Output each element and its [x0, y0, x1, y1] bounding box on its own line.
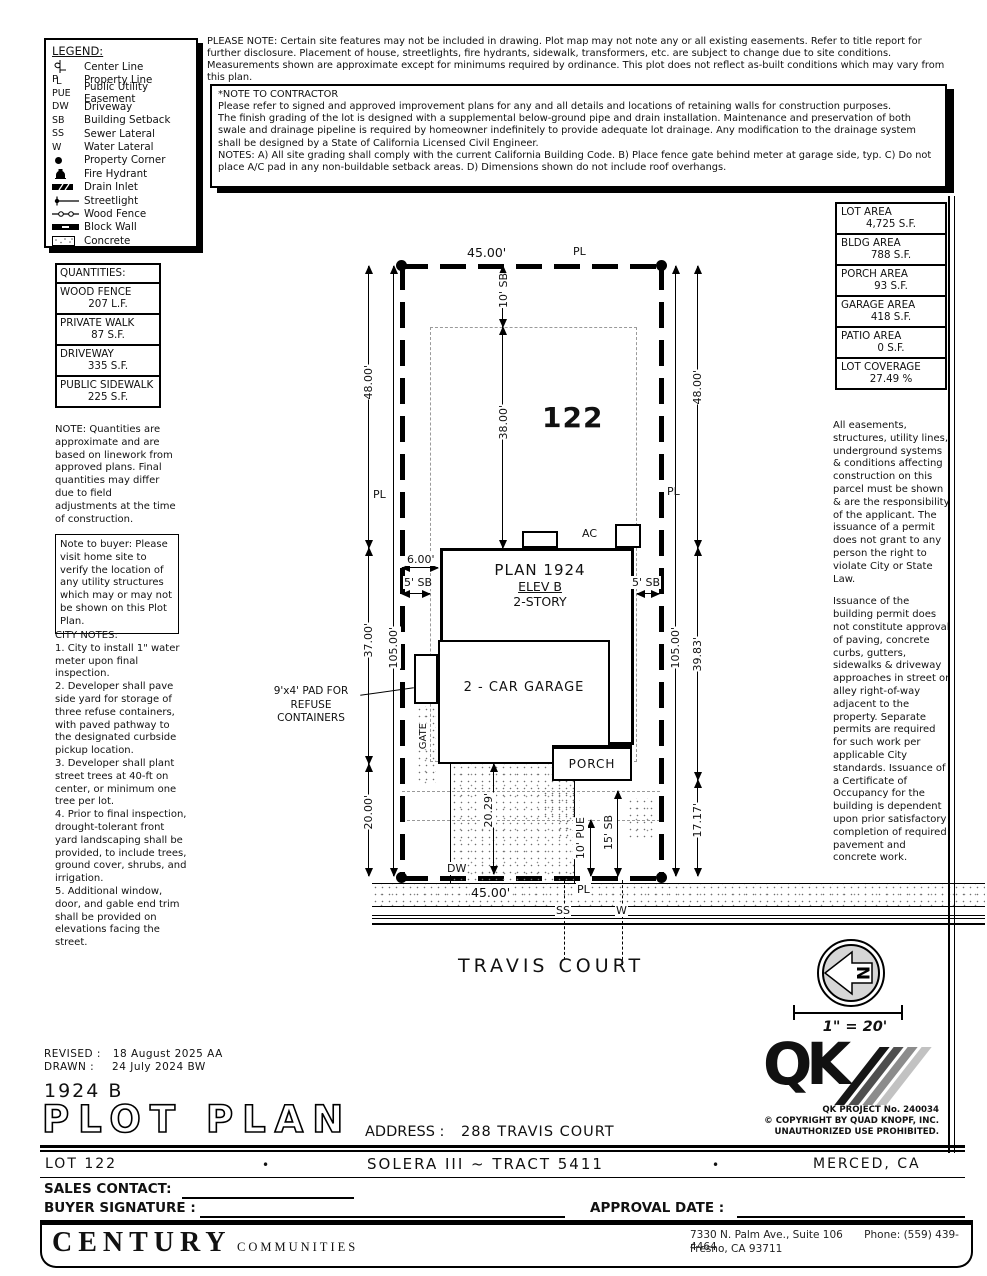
- wood-fence-icon: [52, 210, 84, 218]
- pl-label-top: PL: [572, 245, 587, 258]
- footer-lot: LOT 122: [45, 1156, 117, 1172]
- scale-bar-tick: [901, 1005, 903, 1020]
- street-edge-line: [372, 923, 985, 925]
- quantities-row: PUBLIC SIDEWALK 225 S.F.: [57, 375, 159, 406]
- address-label: ADDRESS :: [365, 1124, 444, 1140]
- legend-label: Wood Fence: [84, 208, 146, 220]
- block-wall-icon: [52, 224, 84, 230]
- legend-row: Center Line: [52, 60, 190, 73]
- concrete-icon: [52, 236, 84, 246]
- dim-line-rear-sb: [617, 791, 618, 876]
- scale-bar-tick: [793, 1005, 795, 1020]
- legend-label: Center Line: [84, 61, 143, 73]
- quantities-note: NOTE: Quantities are approximate and are…: [55, 424, 177, 526]
- ac-pad: [615, 524, 641, 548]
- legend-row: SS Sewer Lateral: [52, 127, 190, 140]
- quantity-value: 87 S.F.: [60, 329, 156, 341]
- property-line-left: [400, 264, 405, 881]
- dim-side-sb-right: 5' SB: [631, 576, 661, 589]
- legend-row: Concrete: [52, 234, 190, 247]
- property-line-icon: PL: [52, 74, 84, 86]
- equipment-pad: [522, 531, 558, 548]
- revised-value: 18 August 2025 AA: [113, 1048, 223, 1060]
- city-note-item: 1. City to install 1" water meter upon f…: [55, 643, 188, 681]
- property-line-front: [402, 264, 664, 269]
- property-corner: [656, 872, 667, 883]
- buyer-signature-label: BUYER SIGNATURE :: [44, 1200, 196, 1216]
- stories: 2-STORY: [460, 594, 620, 609]
- legend-row: Streetlight: [52, 194, 190, 207]
- scale-bar: [793, 1012, 903, 1014]
- separator-line: [40, 1150, 965, 1152]
- separator-line: [40, 1177, 965, 1178]
- quantities-table: QUANTITIES: WOOD FENCE 207 L.F. PRIVATE …: [55, 263, 161, 408]
- dim-width-front: 45.00': [466, 245, 507, 260]
- legend-row: W Water Lateral: [52, 140, 190, 153]
- dim-right-front: 48.00': [690, 370, 705, 405]
- dim-front-to-house: 38.00': [496, 405, 511, 440]
- ac-label: AC: [582, 527, 597, 540]
- street-name: TRAVIS COURT: [458, 955, 644, 977]
- dim-line-side-sb-right: [637, 593, 659, 594]
- private-walk: [627, 798, 653, 838]
- dim-line-left-48: [368, 266, 369, 548]
- office-address-line2: Fresno, CA 93711: [690, 1243, 782, 1255]
- sales-contact-label: SALES CONTACT:: [44, 1181, 172, 1197]
- contractor-note-line1: Please refer to signed and approved impr…: [218, 101, 939, 113]
- qk-copyright: © COPYRIGHT BY QUAD KNOPF, INC.: [753, 1116, 939, 1127]
- legend-label: Driveway: [84, 101, 132, 113]
- quantities-row: DRIVEWAY 335 S.F.: [57, 344, 159, 375]
- footer-bullet: •: [712, 1158, 719, 1172]
- north-arrow-icon: N: [816, 938, 886, 1012]
- revision-row: REVISED : 18 August 2025 AA: [44, 1048, 223, 1060]
- street-edge-line: [372, 915, 985, 916]
- legend-label: Fire Hydrant: [84, 168, 147, 180]
- refuse-pad: [414, 654, 438, 704]
- water-lateral-line: [622, 880, 623, 965]
- address-row: ADDRESS : 288 TRAVIS COURT: [365, 1124, 615, 1140]
- dim-left-rear: 20.00': [361, 795, 376, 830]
- w-abbrev: W: [52, 142, 84, 153]
- legend-label: Concrete: [84, 235, 130, 247]
- revised-label: REVISED :: [44, 1048, 101, 1060]
- legend-row: Block Wall: [52, 221, 190, 234]
- property-corner: [396, 872, 407, 883]
- property-corner: [396, 260, 407, 271]
- dw-abbrev: DW: [52, 101, 84, 112]
- dim-line-left-105: [393, 266, 394, 876]
- house-label: PLAN 1924 ELEV B 2-STORY: [460, 561, 620, 609]
- dim-rear-sb: 15' SB: [601, 815, 616, 850]
- city-notes: CITY NOTES: 1. City to install 1" water …: [55, 630, 188, 950]
- legend-title: LEGEND:: [52, 44, 190, 58]
- area-value: 4,725 S.F.: [841, 218, 941, 230]
- dim-front-setback: 10' SB: [496, 273, 511, 308]
- dim-driveway-depth: 20.29': [481, 793, 496, 828]
- area-name: LOT AREA: [841, 206, 941, 218]
- office-street: 7330 N. Palm Ave., Suite 106: [690, 1229, 843, 1241]
- legend-label: Streetlight: [84, 195, 138, 207]
- quantity-name: PRIVATE WALK: [60, 317, 156, 329]
- contractor-note-box: *NOTE TO CONTRACTOR Please refer to sign…: [210, 84, 947, 188]
- address-value: 288 TRAVIS COURT: [461, 1124, 615, 1140]
- dim-line-right-48: [697, 266, 698, 548]
- quantity-name: WOOD FENCE: [60, 286, 156, 298]
- approval-date-label: APPROVAL DATE :: [590, 1200, 724, 1216]
- quantities-row: PRIVATE WALK 87 S.F.: [57, 313, 159, 344]
- pl-label-right: PL: [666, 485, 681, 498]
- dim-left-front: 48.00': [361, 365, 376, 400]
- dim-width-rear: 45.00': [470, 885, 511, 900]
- legend-box: LEGEND: Center Line PL Property Line PUE…: [44, 38, 198, 248]
- dim-left-total: 105.00': [386, 627, 401, 669]
- city-notes-title: CITY NOTES:: [55, 630, 188, 643]
- sewer-lateral-line: [564, 880, 565, 960]
- quantity-value: 225 S.F.: [60, 391, 156, 403]
- qk-project-number: QK PROJECT No. 240034: [753, 1105, 939, 1116]
- drawn-row: DRAWN : 24 July 2024 BW: [44, 1061, 206, 1073]
- please-note-text: PLEASE NOTE: Certain site features may n…: [207, 36, 949, 85]
- dw-label: DW: [446, 862, 467, 875]
- gate-label: GATE: [418, 723, 429, 749]
- property-corner: [656, 260, 667, 271]
- legend-label: Sewer Lateral: [84, 128, 155, 140]
- plan-name: PLAN 1924: [460, 561, 620, 579]
- buyer-note-box: Note to buyer: Please visit home site to…: [55, 534, 179, 634]
- quantity-name: PUBLIC SIDEWALK: [60, 379, 156, 391]
- legend-row: Wood Fence: [52, 207, 190, 220]
- centerline-icon: [52, 60, 84, 73]
- sb-abbrev: SB: [52, 115, 84, 126]
- quantities-header: QUANTITIES:: [57, 265, 159, 282]
- approval-date-blank: [737, 1216, 965, 1218]
- fire-hydrant-icon: [52, 168, 84, 180]
- qk-logo-block: QK QK PROJECT No. 240034 © COPYRIGHT BY …: [763, 1043, 939, 1138]
- dim-left-mid: 37.00': [361, 623, 376, 658]
- legend-row: Fire Hydrant: [52, 167, 190, 180]
- lot-number: 122: [542, 401, 603, 434]
- garage-label-text: 2 - CAR GARAGE: [440, 680, 608, 697]
- area-row: LOT AREA 4,725 S.F.: [837, 204, 945, 233]
- contractor-note-title: *NOTE TO CONTRACTOR: [218, 89, 939, 101]
- ss-label: SS: [555, 904, 571, 917]
- legend-label: Building Setback: [84, 114, 170, 126]
- contractor-note-line3: NOTES: A) All site grading shall comply …: [218, 150, 939, 174]
- plot-plan-sheet: LEGEND: Center Line PL Property Line PUE…: [0, 0, 987, 1276]
- quantity-name: DRIVEWAY: [60, 348, 156, 360]
- streetlight-icon: [52, 196, 84, 206]
- buyer-signature-blank: [200, 1216, 565, 1218]
- site-plan-drawing: AC PLAN 1924 ELEV B 2-STORY 2 - CAR GARA…: [260, 245, 985, 990]
- porch-outline: PORCH: [552, 745, 632, 781]
- sheet-title: PLOT PLAN: [42, 1098, 352, 1141]
- pl-label-bottom: PL: [576, 883, 591, 896]
- city-note-item: 3. Developer shall plant street trees at…: [55, 758, 188, 809]
- private-walk: [542, 790, 580, 818]
- dim-side-sb-left: 5' SB: [403, 576, 433, 589]
- legend-row: PUE Public Utility Easement: [52, 87, 190, 100]
- qk-unauthorized: UNAUTHORIZED USE PROHIBITED.: [753, 1127, 939, 1138]
- qk-caption: QK PROJECT No. 240034 © COPYRIGHT BY QUA…: [753, 1105, 939, 1139]
- dim-line-right-105: [675, 266, 676, 876]
- city-note-item: 2. Developer shall pave side yard for st…: [55, 681, 188, 758]
- legend-row: Drain Inlet: [52, 181, 190, 194]
- page-border-right: [948, 196, 950, 1153]
- legend-row: SB Building Setback: [52, 114, 190, 127]
- footer-city: MERCED, CA: [813, 1156, 921, 1172]
- quantity-value: 207 L.F.: [60, 298, 156, 310]
- dim-right-rear: 17.17': [690, 803, 705, 838]
- street-edge-line: [372, 918, 985, 919]
- svg-text:N: N: [852, 966, 872, 980]
- pue-abbrev: PUE: [52, 88, 84, 99]
- separator-line: [40, 1145, 965, 1148]
- qk-logo: QK: [763, 1035, 845, 1093]
- dim-right-mid: 39.83': [690, 637, 705, 672]
- legend-label: Drain Inlet: [84, 181, 138, 193]
- property-corner-icon: [52, 157, 84, 164]
- ss-abbrev: SS: [52, 128, 84, 139]
- elevation: ELEV B: [460, 579, 620, 594]
- brand-sub: COMMUNITIES: [237, 1240, 358, 1255]
- legend-row: Property Corner: [52, 154, 190, 167]
- page-border-right-inner: [954, 196, 955, 1153]
- quantity-value: 335 S.F.: [60, 360, 156, 372]
- footer-bullet: •: [262, 1158, 269, 1172]
- public-sidewalk: [372, 883, 985, 907]
- dim-line-pad-offset: [402, 567, 438, 568]
- dim-right-total: 105.00': [668, 627, 683, 669]
- property-line-right: [659, 264, 664, 881]
- dim-pad-offset: 6.00': [406, 553, 436, 566]
- dim-line-side-sb-left: [402, 593, 430, 594]
- city-note-item: 4. Prior to final inspection, drought-to…: [55, 809, 188, 886]
- quantities-row: WOOD FENCE 207 L.F.: [57, 282, 159, 313]
- contractor-note-line2: The finish grading of the lot is designe…: [218, 113, 939, 149]
- sales-contact-blank: [182, 1197, 354, 1199]
- legend-label: Water Lateral: [84, 141, 154, 153]
- drain-inlet-icon: [52, 183, 84, 191]
- pl-label-left: PL: [372, 488, 387, 501]
- garage-label: 2 - CAR GARAGE: [440, 680, 608, 697]
- drawn-value: 24 July 2024 BW: [112, 1061, 206, 1073]
- legend-label: Property Corner: [84, 154, 165, 166]
- dim-pue: 10' PUE: [573, 817, 588, 859]
- brand-bar: CENTURY COMMUNITIES 7330 N. Palm Ave., S…: [40, 1220, 973, 1268]
- refuse-pad-note: 9'x4' PAD FOR REFUSE CONTAINERS: [262, 685, 360, 726]
- footer-tract: SOLERA III ~ TRACT 5411: [367, 1155, 604, 1173]
- city-note-item: 5. Additional window, door, and gable en…: [55, 886, 188, 950]
- drawn-label: DRAWN :: [44, 1061, 94, 1073]
- dim-line-pue: [590, 820, 591, 876]
- brand-name: CENTURY: [52, 1227, 231, 1259]
- legend-label: Block Wall: [84, 221, 137, 233]
- porch-label: PORCH: [554, 757, 630, 771]
- w-label: W: [615, 904, 628, 917]
